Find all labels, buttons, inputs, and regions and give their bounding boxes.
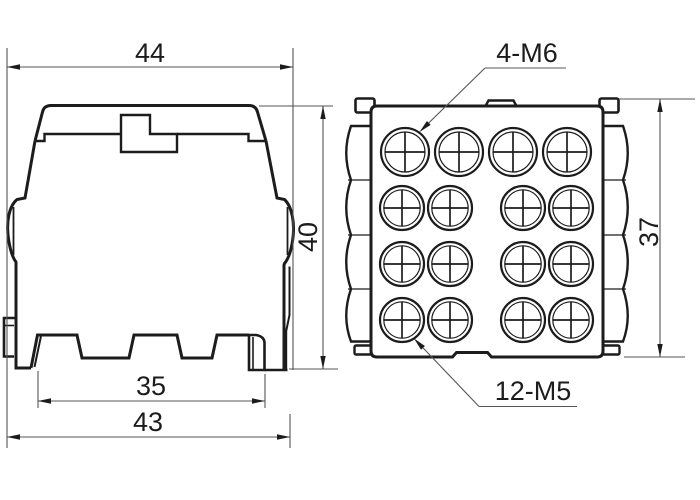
side-view: 44 40 35 43	[4, 38, 338, 448]
screw-m5	[428, 298, 472, 342]
dim-35-label: 35	[136, 371, 166, 401]
corner-tab-bottom-right	[603, 346, 620, 355]
dimension-40: 40	[259, 106, 338, 369]
left-foot	[4, 318, 16, 357]
body-right-edge	[266, 141, 294, 370]
front-view: 4-M6 12-M5 37	[346, 38, 695, 407]
right-foot	[249, 335, 265, 370]
screw-m5	[549, 298, 593, 342]
screw-m5	[549, 186, 593, 230]
bottom-din-profile	[31, 335, 249, 368]
lid-parting-line-right	[177, 134, 266, 141]
screw-m5	[428, 186, 472, 230]
right-edge-wedge	[286, 267, 289, 370]
screw-m5	[380, 298, 424, 342]
screw-m5	[428, 242, 472, 286]
screw-m6	[381, 128, 429, 176]
dimension-35: 35	[38, 371, 265, 408]
dimension-37: 37	[619, 99, 695, 357]
callout-4-m6-label: 4-M6	[496, 38, 558, 68]
screw-m5	[501, 242, 545, 286]
terminal-block-drawing: 44 40 35 43	[0, 0, 700, 500]
drawing-canvas: 44 40 35 43	[0, 0, 700, 500]
screw-m6	[489, 128, 537, 176]
body-left-edge	[8, 141, 35, 368]
callout-12-m5-label: 12-M5	[495, 376, 572, 406]
dimension-43: 43	[7, 407, 290, 448]
screw-m5	[380, 242, 424, 286]
screw-m5	[501, 298, 545, 342]
screw-m6	[435, 128, 483, 176]
dim-40-label: 40	[293, 222, 323, 252]
dim-43-label: 43	[133, 407, 163, 437]
corner-tab-bottom-left	[355, 346, 372, 355]
dim-44-label: 44	[135, 38, 165, 68]
lid-parting-line-left	[35, 134, 121, 141]
screw-m5	[501, 186, 545, 230]
screw-m5	[549, 242, 593, 286]
lid-tab	[121, 115, 177, 152]
screw-m6	[543, 128, 591, 176]
screw-m5	[380, 186, 424, 230]
right-scallops	[603, 126, 628, 342]
dim-37-label: 37	[634, 217, 664, 247]
left-scallops	[346, 126, 371, 342]
